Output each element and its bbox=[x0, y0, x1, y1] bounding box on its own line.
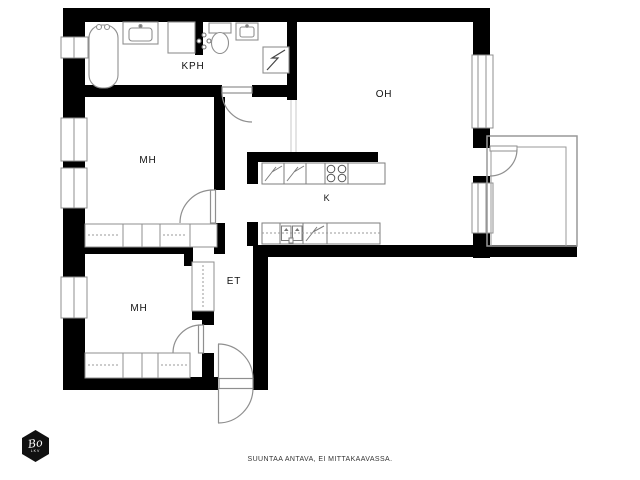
disclaimer-text: SUUNTAA ANTAVA, EI MITTAKAAVASSA. bbox=[0, 456, 640, 463]
wall-et-mh2-top bbox=[202, 318, 214, 325]
wall-bottom-left bbox=[63, 377, 218, 390]
washing-machine-icon bbox=[168, 22, 195, 53]
wall-top bbox=[63, 8, 490, 22]
room-label-mh2: MH bbox=[130, 303, 147, 314]
front-door-outer-arc bbox=[218, 388, 253, 423]
walls bbox=[63, 8, 577, 390]
hall-closet bbox=[192, 262, 214, 311]
room-label-kph: KPH bbox=[182, 61, 205, 72]
wall-et-right bbox=[253, 245, 268, 390]
wall-bottom-right bbox=[253, 245, 577, 257]
window-mh2 bbox=[61, 277, 87, 318]
balcony bbox=[487, 136, 577, 246]
opening-guide-lines bbox=[291, 100, 296, 152]
room-label-k: K bbox=[324, 193, 331, 203]
wardrobes-mh2 bbox=[85, 353, 190, 378]
mh1-door-arc bbox=[180, 190, 213, 223]
wall-left-seg4 bbox=[63, 208, 85, 277]
vanity-faucet bbox=[139, 25, 142, 28]
bathtub-tap-icon bbox=[97, 25, 102, 30]
bathroom-fixtures bbox=[89, 22, 289, 88]
floor-plan-drawing: KPH OH MH K ET MH bbox=[0, 0, 640, 480]
balcony-inner-rail bbox=[491, 147, 566, 246]
wall-kitchen-stub-bottom bbox=[247, 222, 258, 246]
logo-brand-text: Bo bbox=[28, 438, 44, 450]
kitchen-counter-top bbox=[262, 163, 385, 184]
wall-et-mh2-bottom bbox=[202, 353, 214, 390]
balcony-outer-rail bbox=[487, 136, 577, 246]
mh1-door-leaf bbox=[211, 190, 216, 223]
mh2-door-leaf bbox=[199, 325, 204, 353]
wall-mh1-right-top bbox=[214, 97, 225, 190]
window-mh1-upper bbox=[61, 118, 87, 161]
room-label-et: ET bbox=[227, 276, 241, 287]
wall-kitchen-stub-top bbox=[247, 152, 258, 184]
front-door-inner-arc bbox=[218, 344, 253, 379]
balcony-door-leaf bbox=[490, 146, 517, 151]
window-oh-lower bbox=[472, 183, 493, 233]
mh2-door-arc bbox=[173, 325, 201, 353]
balcony-door bbox=[490, 146, 517, 176]
wall-kph-bottom-left bbox=[63, 85, 222, 97]
sink-drain bbox=[289, 238, 293, 243]
wall-left-seg1 bbox=[63, 8, 85, 37]
vanity-basin bbox=[129, 28, 152, 41]
hand-sink-faucet bbox=[246, 25, 249, 28]
toilet-icon bbox=[212, 33, 229, 54]
kph-door-leaf bbox=[222, 87, 252, 93]
room-label-oh: OH bbox=[376, 89, 393, 100]
kitchen-counter-bottom bbox=[262, 223, 380, 244]
front-door-leaf bbox=[219, 379, 253, 389]
room-label-mh1: MH bbox=[139, 155, 156, 166]
floor-plan-page: KPH OH MH K ET MH Bo LKV SUUNTAA ANTAVA,… bbox=[0, 0, 640, 480]
counter-top-row bbox=[262, 163, 385, 184]
window-mh1-lower bbox=[61, 168, 87, 208]
balcony-door-arc bbox=[490, 149, 517, 176]
window-kph bbox=[61, 37, 88, 58]
window-oh-upper bbox=[472, 55, 493, 128]
wall-left-seg3 bbox=[63, 161, 85, 168]
wall-right-seg1 bbox=[473, 8, 490, 55]
toilet-tank bbox=[209, 23, 231, 33]
kph-door-arc bbox=[222, 92, 252, 122]
bathtub-tap-icon bbox=[105, 25, 110, 30]
bathtub-icon bbox=[89, 25, 118, 88]
wardrobes-mh1 bbox=[85, 224, 217, 247]
wall-kitchen-bar bbox=[247, 152, 378, 162]
hand-sink-basin bbox=[240, 27, 254, 37]
